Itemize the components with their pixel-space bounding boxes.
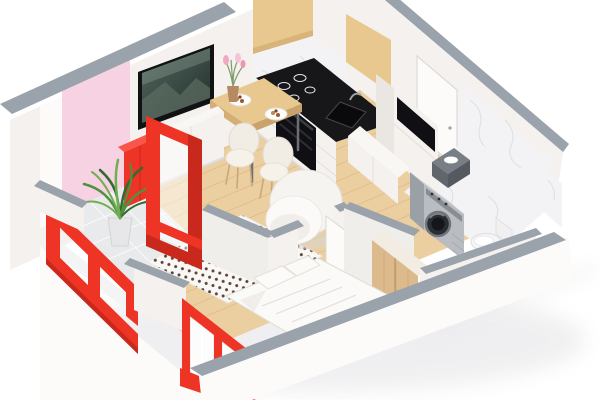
- tulip: [235, 53, 241, 63]
- vase: [227, 86, 239, 102]
- tulip: [241, 60, 246, 68]
- red-glazed-partition: [146, 116, 202, 270]
- washer-drum: [432, 218, 445, 231]
- towel-top: [444, 157, 458, 164]
- plant-pot: [108, 218, 132, 246]
- tulip: [223, 55, 229, 65]
- isometric-apartment-svg: 3D isometric cutaway floor plan render o…: [0, 0, 600, 400]
- dinner-plate: [265, 108, 287, 120]
- door-handle: [448, 126, 451, 129]
- tulip: [229, 52, 234, 60]
- floor-plan-render: 3D isometric cutaway floor plan render o…: [0, 0, 600, 400]
